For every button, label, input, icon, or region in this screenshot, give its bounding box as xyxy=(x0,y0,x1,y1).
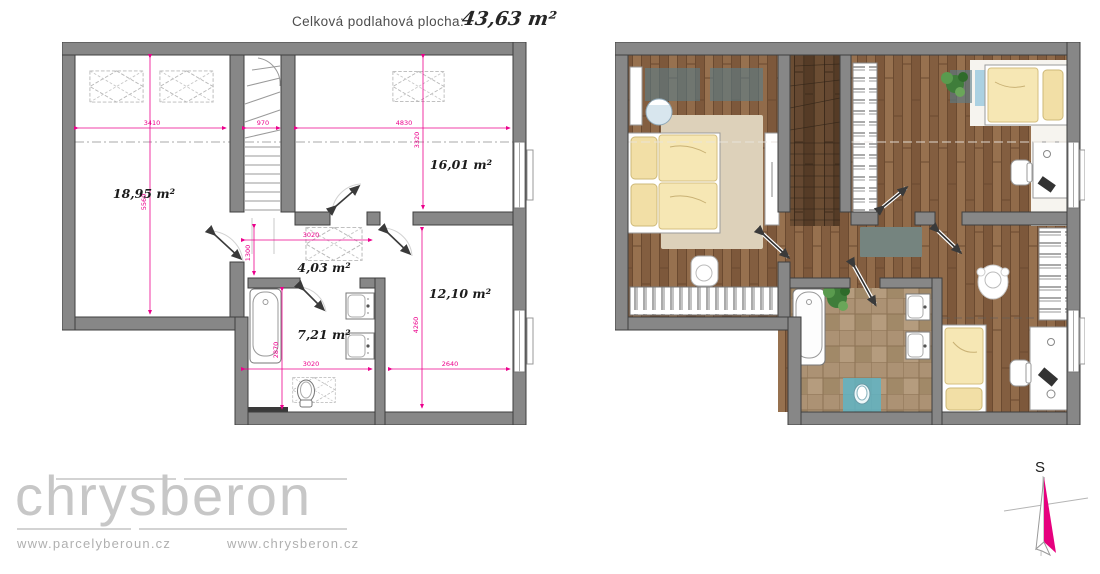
dim-hall-width: 3020 xyxy=(303,231,320,239)
logo-rule xyxy=(139,528,347,530)
compass-needle-pink xyxy=(1044,477,1056,553)
compass-needle-white xyxy=(1036,477,1044,549)
desk xyxy=(1030,327,1067,410)
floor-plan-furnished xyxy=(615,42,1085,425)
room-label-16-01: 16,01 m² xyxy=(430,157,493,172)
closet-shelves xyxy=(853,63,877,215)
logo-rule xyxy=(17,528,131,530)
hall-rug xyxy=(860,227,922,257)
window xyxy=(514,142,533,208)
clothes-rack xyxy=(630,287,778,315)
compass-north-indicator: S xyxy=(1000,456,1092,568)
dim-hall-height: 1300 xyxy=(244,245,252,262)
closet-wardrobe-right xyxy=(765,133,779,225)
floor-plan-technical: 3410 970 4830 5560 3320 3020 1300 2870 3… xyxy=(62,42,540,425)
total-area-label: Celková podlahová plocha: xyxy=(292,14,464,29)
wardrobe-shelves xyxy=(1039,228,1067,320)
desk-chair xyxy=(1011,160,1032,185)
company-logo: chrysberon xyxy=(15,468,312,524)
single-bed xyxy=(942,325,986,412)
floorplan-sheet: Celková podlahová plocha: 43,63 m² xyxy=(0,0,1100,574)
sink-icon xyxy=(346,293,374,319)
dim-room2-width: 4830 xyxy=(396,119,413,127)
room-area-labels: 18,95 m² 16,01 m² 4,03 m² 7,21 m² 12,10 … xyxy=(113,157,493,342)
room-label-18-95: 18,95 m² xyxy=(113,186,176,201)
compass-north-label: S xyxy=(1035,459,1045,476)
staircase xyxy=(245,58,280,254)
dim-room2-height: 3320 xyxy=(413,132,421,149)
website-url-parcelyberoun: www.parcelyberoun.cz xyxy=(17,536,171,551)
armchair xyxy=(977,265,1009,299)
dim-bath-width: 3020 xyxy=(303,360,320,368)
round-armchair xyxy=(646,99,672,125)
room-label-4-03: 4,03 m² xyxy=(297,260,351,275)
dim-room1-width: 3410 xyxy=(144,119,161,127)
double-bed xyxy=(628,133,720,233)
dim-room3-width: 2640 xyxy=(442,360,459,368)
room-label-7-21: 7,21 m² xyxy=(297,327,351,342)
window xyxy=(514,310,533,372)
dim-room3-height: 4260 xyxy=(412,317,420,334)
website-url-chrysberon: www.chrysberon.cz xyxy=(227,536,359,551)
sink-icon xyxy=(906,332,930,359)
total-area-value: 43,63 m² xyxy=(460,8,558,30)
wardrobe xyxy=(630,67,642,125)
armchair xyxy=(691,256,718,286)
window xyxy=(1068,142,1085,208)
dim-bath-height: 2870 xyxy=(272,342,280,359)
single-bed xyxy=(985,65,1067,125)
sink-icon xyxy=(906,294,930,320)
desk-chair xyxy=(1010,360,1031,386)
dim-stairs-width: 970 xyxy=(257,119,269,127)
window xyxy=(1068,310,1085,372)
toilet-icon xyxy=(298,380,315,407)
toilet-icon xyxy=(843,378,881,412)
desk xyxy=(1033,142,1067,198)
room-label-12-10: 12,10 m² xyxy=(429,286,492,301)
